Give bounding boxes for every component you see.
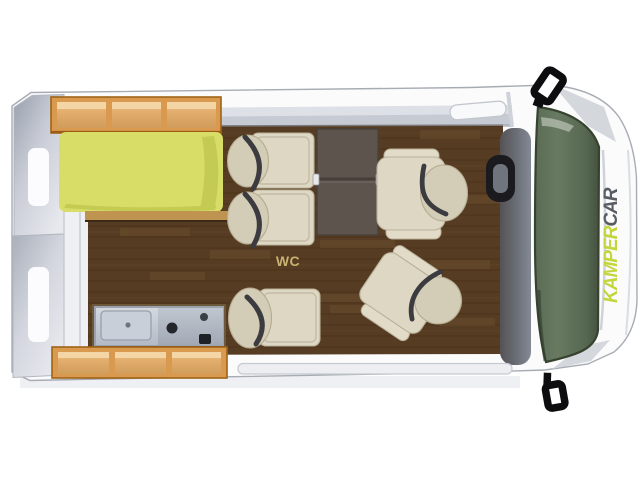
svg-text:KAMPERCAR: KAMPERCAR: [601, 187, 622, 303]
svg-text:WC: WC: [276, 253, 300, 269]
